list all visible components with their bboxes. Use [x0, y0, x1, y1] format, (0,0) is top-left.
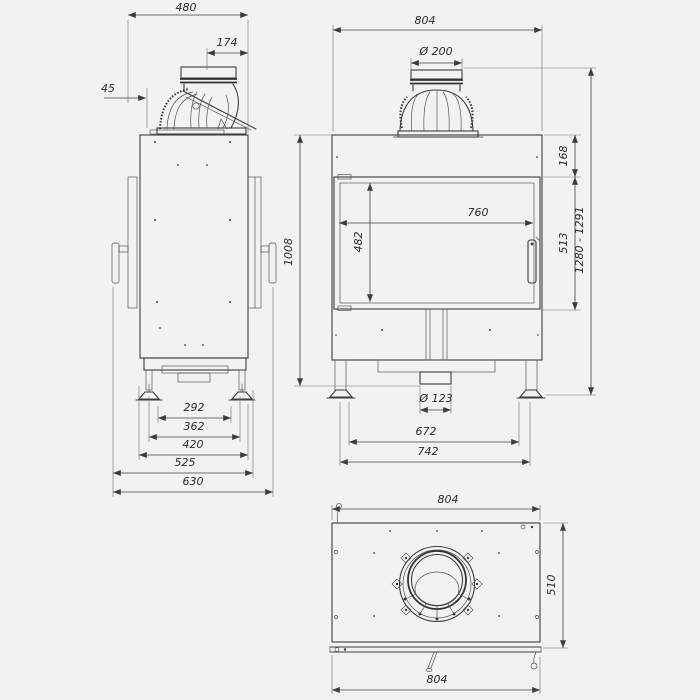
side-base-legs	[136, 358, 255, 400]
dim-side-base-525: 525	[175, 456, 196, 469]
dim-side-base-362: 362	[184, 420, 205, 433]
dim-top-width-top: 804	[438, 493, 459, 506]
dim-side-base-292: 292	[184, 401, 205, 414]
door-glass	[340, 183, 534, 303]
damper-hook-top	[336, 503, 341, 523]
dim-top-depth: 510	[545, 575, 558, 596]
dim-side-depth-total: 480	[176, 1, 197, 14]
dim-front-collar-to-door: 168	[557, 146, 570, 167]
side-view: 480 174 45 292 362 420 525	[101, 1, 276, 497]
door-hinge-bottom	[338, 306, 351, 311]
side-flue-elbow	[150, 67, 256, 134]
dim-side-flue-offset: 174	[217, 36, 238, 49]
side-body	[112, 135, 276, 358]
door-handle	[528, 240, 536, 283]
front-flue-collar	[393, 70, 483, 137]
side-dimensions: 480 174 45 292 362 420 525	[101, 1, 273, 497]
dim-front-body-height: 1008	[282, 238, 295, 266]
dim-side-base-420: 420	[183, 438, 204, 451]
front-view: 804 Ø 200 1008 168 513 1280 - 1291	[282, 14, 596, 466]
damper-rod	[426, 652, 437, 672]
dim-front-glass-height: 482	[352, 232, 365, 253]
dim-top-width-front: 804	[427, 673, 448, 686]
damper-hook-bottom	[531, 652, 537, 669]
dim-front-flue-diameter: Ø 200	[418, 45, 452, 58]
dim-front-door-height: 513	[557, 233, 570, 254]
air-inlet-stub	[420, 372, 451, 384]
top-view: 804 510 804	[330, 493, 568, 694]
dim-side-base-630: 630	[183, 475, 204, 488]
top-flue-flange	[392, 547, 482, 622]
technical-drawing-page: 480 174 45 292 362 420 525	[0, 0, 700, 700]
dim-front-glass-width: 760	[468, 206, 489, 219]
top-body	[330, 503, 541, 671]
dim-front-overall-height: 1280 - 1291	[573, 207, 586, 274]
dim-front-base-width: 742	[418, 445, 439, 458]
dim-front-width-total: 804	[415, 14, 436, 27]
dim-front-inlet-diameter: Ø 123	[418, 392, 452, 405]
dim-front-feet-span: 672	[416, 425, 437, 438]
dim-side-top-offset: 45	[101, 82, 115, 95]
fireplace-insert-drawing: 480 174 45 292 362 420 525	[0, 0, 700, 700]
